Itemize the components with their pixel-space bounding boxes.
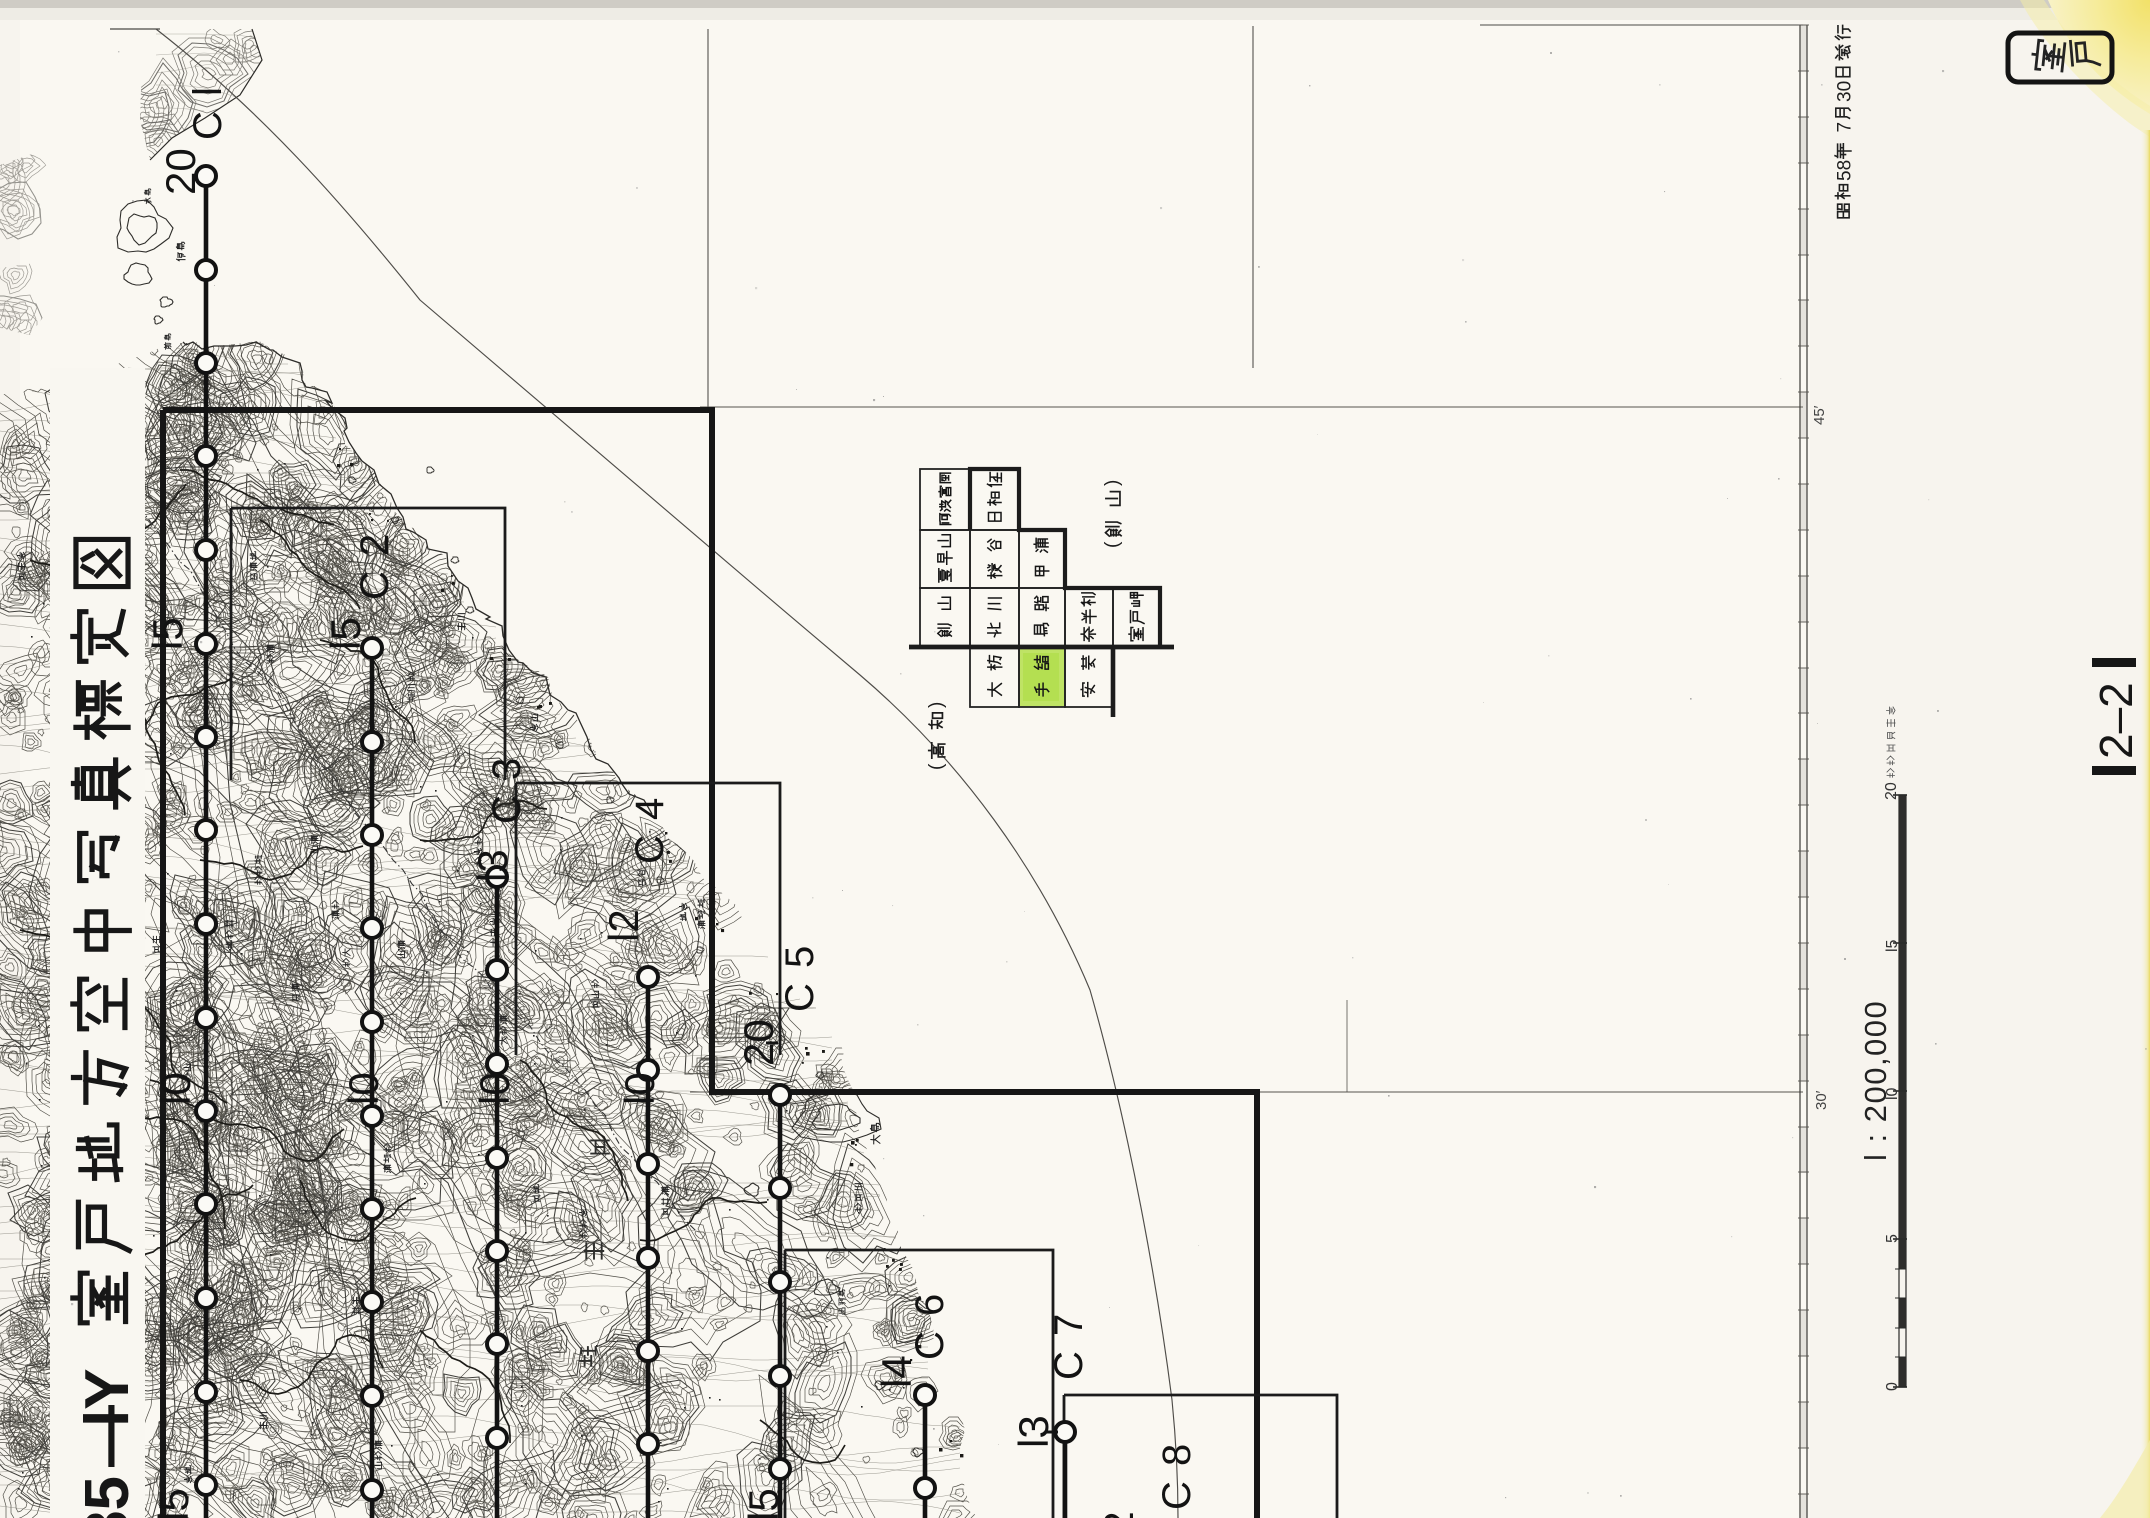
svg-text:C 2: C 2 [353,532,397,600]
svg-text:l5: l5 [150,1488,197,1518]
svg-text:45′: 45′ [1811,405,1828,425]
svg-text:): ) [1102,480,1123,486]
svg-text:): ) [926,702,947,708]
svg-text:C 3: C 3 [485,756,529,824]
svg-text:l : 200,000: l : 200,000 [1858,1000,1893,1161]
svg-text:20: 20 [1883,782,1900,800]
svg-text:l5: l5 [1884,939,1901,952]
svg-text:C 7: C 7 [1047,1312,1091,1380]
svg-text:2–2: 2–2 [2090,682,2142,759]
svg-text:58: 58 [1835,160,1856,181]
svg-text:(: ( [1102,541,1123,548]
svg-text:(: ( [926,763,947,770]
svg-text:C 5: C 5 [778,944,822,1012]
svg-text:l5: l5 [322,617,369,650]
svg-text:7: 7 [1835,122,1856,133]
svg-text:85: 85 [73,1476,142,1518]
svg-text:l2: l2 [600,909,647,942]
svg-text:l4: l4 [873,1355,920,1388]
svg-text:lY: lY [73,1368,142,1427]
svg-text:l3: l3 [469,849,516,882]
svg-text:l0: l0 [340,1072,387,1105]
svg-text:l0: l0 [152,1072,199,1105]
svg-text:20: 20 [157,148,204,195]
svg-text:5: 5 [1884,1234,1901,1243]
svg-text:C 8: C 8 [1155,1442,1199,1510]
svg-text:l0: l0 [616,1072,663,1105]
svg-text:l0: l0 [471,1072,518,1105]
svg-text:l5: l5 [144,617,191,650]
svg-text:0: 0 [1884,1382,1901,1391]
svg-text:30: 30 [1835,81,1856,102]
svg-text:30′: 30′ [1813,1090,1830,1110]
svg-text:C 4: C 4 [628,796,672,864]
svg-text:l2: l2 [1095,1511,1142,1518]
svg-text:C l: C l [186,85,230,140]
svg-text:l5: l5 [740,1488,787,1518]
svg-text:C 6: C 6 [908,1292,952,1360]
